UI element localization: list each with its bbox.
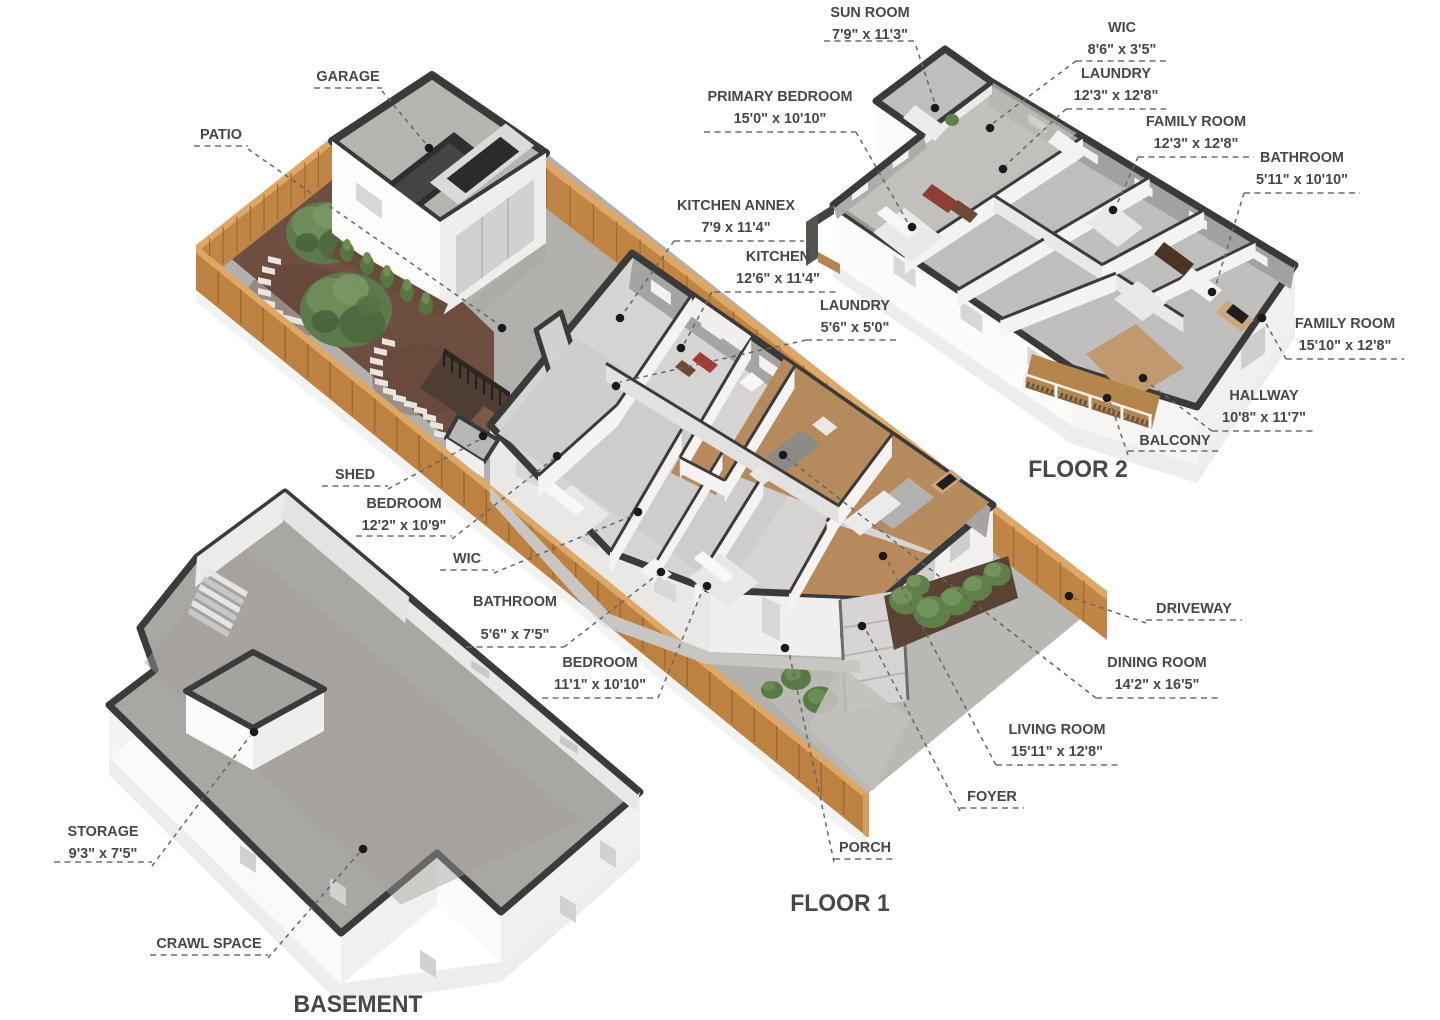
- svg-text:FLOOR 2: FLOOR 2: [1028, 456, 1128, 483]
- svg-text:LIVING ROOM: LIVING ROOM: [1009, 722, 1106, 738]
- svg-text:5'11" x 10'10": 5'11" x 10'10": [1256, 172, 1348, 188]
- svg-text:BASEMENT: BASEMENT: [294, 991, 424, 1018]
- svg-text:WIC: WIC: [453, 551, 481, 567]
- svg-text:STORAGE: STORAGE: [67, 824, 138, 840]
- svg-text:CRAWL SPACE: CRAWL SPACE: [156, 936, 261, 952]
- svg-text:BATHROOM: BATHROOM: [1260, 150, 1344, 166]
- svg-text:12'3" x 12'8": 12'3" x 12'8": [1074, 88, 1159, 104]
- svg-text:5'6" x 7'5": 5'6" x 7'5": [481, 627, 550, 643]
- svg-text:7'9 x 11'4": 7'9 x 11'4": [701, 220, 770, 236]
- svg-text:15'10" x 12'8": 15'10" x 12'8": [1299, 338, 1392, 354]
- svg-text:15'0" x 10'10": 15'0" x 10'10": [734, 111, 827, 127]
- svg-text:BEDROOM: BEDROOM: [562, 655, 637, 671]
- svg-text:9'3" x 7'5": 9'3" x 7'5": [69, 846, 138, 862]
- svg-text:8'6" x 3'5": 8'6" x 3'5": [1088, 42, 1157, 58]
- svg-text:12'6" x 11'4": 12'6" x 11'4": [736, 271, 820, 287]
- svg-text:FOYER: FOYER: [967, 789, 1017, 805]
- svg-text:12'2" x 10'9": 12'2" x 10'9": [362, 518, 447, 534]
- svg-text:HALLWAY: HALLWAY: [1229, 388, 1298, 404]
- svg-text:FAMILY ROOM: FAMILY ROOM: [1146, 114, 1246, 130]
- svg-text:FLOOR 1: FLOOR 1: [790, 890, 890, 917]
- svg-text:WIC: WIC: [1108, 20, 1136, 36]
- svg-text:BALCONY: BALCONY: [1139, 433, 1210, 449]
- svg-text:FAMILY ROOM: FAMILY ROOM: [1295, 316, 1395, 332]
- svg-text:5'6" x 5'0": 5'6" x 5'0": [821, 320, 890, 336]
- svg-text:14'2" x 16'5": 14'2" x 16'5": [1115, 677, 1200, 693]
- svg-text:KITCHEN: KITCHEN: [746, 249, 810, 265]
- svg-text:SHED: SHED: [335, 467, 375, 483]
- svg-text:15'11" x 12'8": 15'11" x 12'8": [1011, 744, 1103, 760]
- svg-text:DRIVEWAY: DRIVEWAY: [1156, 601, 1232, 617]
- svg-text:LAUNDRY: LAUNDRY: [820, 298, 890, 314]
- svg-text:10'8" x 11'7": 10'8" x 11'7": [1222, 410, 1306, 426]
- svg-text:12'3" x 12'8": 12'3" x 12'8": [1154, 136, 1239, 152]
- svg-text:GARAGE: GARAGE: [316, 69, 379, 85]
- svg-text:BEDROOM: BEDROOM: [366, 496, 441, 512]
- svg-text:11'1" x 10'10": 11'1" x 10'10": [554, 677, 646, 693]
- svg-text:PATIO: PATIO: [200, 127, 242, 143]
- svg-text:BATHROOM: BATHROOM: [473, 594, 557, 610]
- svg-text:PRIMARY BEDROOM: PRIMARY BEDROOM: [707, 89, 852, 105]
- svg-text:SUN ROOM: SUN ROOM: [830, 5, 909, 21]
- svg-text:DINING ROOM: DINING ROOM: [1107, 655, 1206, 671]
- svg-text:LAUNDRY: LAUNDRY: [1081, 66, 1151, 82]
- svg-text:KITCHEN ANNEX: KITCHEN ANNEX: [677, 198, 795, 214]
- svg-text:PORCH: PORCH: [839, 840, 891, 856]
